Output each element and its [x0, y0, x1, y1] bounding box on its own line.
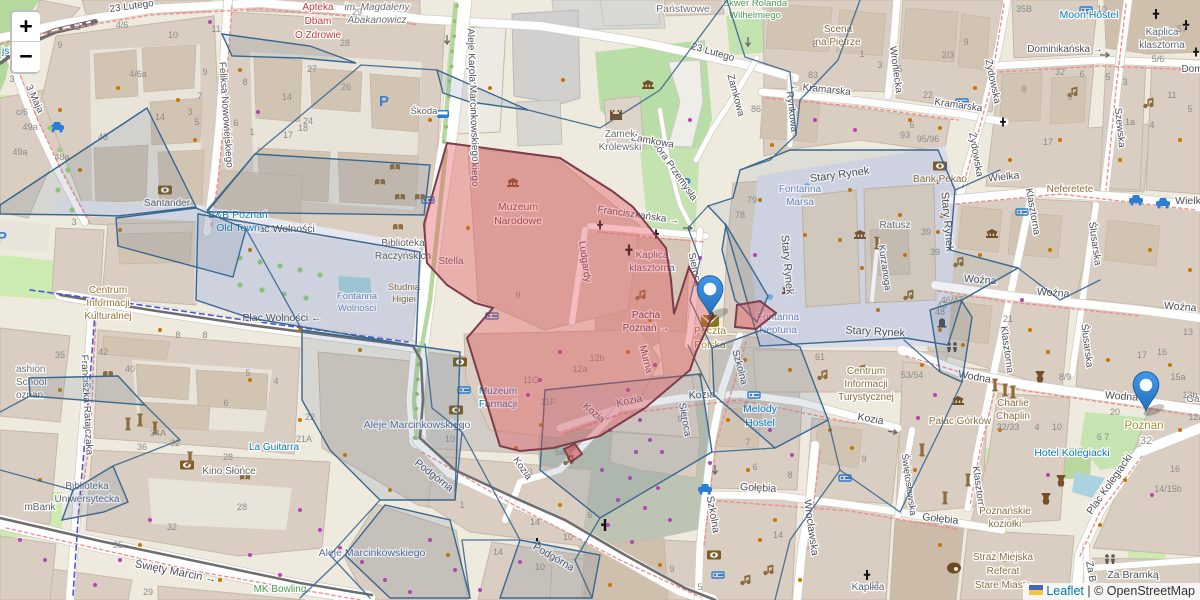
- svg-text:9: 9: [861, 454, 866, 464]
- svg-text:Kino Słońce: Kino Słońce: [202, 466, 256, 477]
- svg-text:40: 40: [125, 364, 135, 374]
- svg-text:8: 8: [202, 330, 207, 340]
- svg-text:5: 5: [194, 117, 199, 127]
- svg-text:Referat: Referat: [987, 566, 1020, 577]
- svg-text:Kaplica: Kaplica: [1146, 27, 1179, 38]
- svg-text:5: 5: [1187, 104, 1192, 114]
- svg-text:10: 10: [1052, 422, 1062, 432]
- svg-text:35B: 35B: [1016, 4, 1032, 14]
- svg-text:20: 20: [1110, 407, 1120, 417]
- svg-text:21A: 21A: [296, 434, 312, 444]
- svg-text:7: 7: [197, 91, 202, 101]
- svg-text:ashion: ashion: [16, 364, 45, 375]
- svg-text:4: 4: [273, 376, 278, 386]
- svg-text:42: 42: [98, 347, 108, 357]
- svg-text:12a: 12a: [1188, 412, 1200, 422]
- svg-text:Pałac Górków: Pałac Górków: [929, 416, 992, 427]
- svg-text:2/3: 2/3: [942, 50, 955, 60]
- svg-text:3: 3: [527, 467, 532, 477]
- svg-text:3: 3: [1122, 77, 1127, 87]
- svg-text:34A: 34A: [150, 428, 166, 438]
- svg-text:35: 35: [55, 350, 65, 360]
- svg-text:5: 5: [245, 368, 250, 378]
- svg-text:9: 9: [669, 564, 674, 574]
- svg-text:3: 3: [9, 74, 14, 84]
- svg-text:9: 9: [202, 67, 207, 77]
- svg-text:Straż Miejska: Straż Miejska: [973, 552, 1033, 563]
- svg-text:Śkoda: Śkoda: [411, 105, 439, 117]
- svg-text:Informacji: Informacji: [86, 298, 129, 309]
- svg-text:83: 83: [808, 70, 818, 80]
- svg-text:Zamek: Zamek: [605, 129, 637, 140]
- svg-text:6: 6: [233, 118, 238, 128]
- svg-text:29: 29: [352, 7, 362, 17]
- svg-text:16: 16: [1170, 464, 1180, 474]
- svg-text:14: 14: [155, 112, 165, 122]
- svg-text:3: 3: [877, 60, 882, 70]
- svg-text:Za Bramką: Za Bramką: [1107, 569, 1159, 581]
- svg-text:11: 11: [1167, 90, 1176, 100]
- svg-text:1: 1: [859, 49, 864, 59]
- svg-text:14/15b: 14/15b: [1154, 484, 1182, 494]
- svg-text:2: 2: [75, 22, 80, 32]
- svg-text:P: P: [0, 229, 7, 246]
- svg-text:7: 7: [745, 437, 750, 447]
- svg-text:26: 26: [341, 82, 351, 92]
- svg-text:koziołki: koziołki: [989, 519, 1022, 530]
- svg-text:6: 6: [752, 462, 757, 472]
- svg-text:1a: 1a: [1125, 117, 1135, 127]
- svg-text:1: 1: [249, 127, 254, 137]
- svg-text:MK Bowling: MK Bowling: [254, 584, 307, 595]
- svg-text:3: 3: [71, 217, 76, 227]
- svg-text:4/6a: 4/6a: [129, 69, 147, 79]
- svg-text:32/33: 32/33: [997, 422, 1020, 432]
- svg-text:6: 6: [909, 120, 914, 130]
- svg-text:Apteka: Apteka: [302, 2, 334, 13]
- svg-text:Wilhelmiego: Wilhelmiego: [729, 10, 781, 21]
- svg-text:6 7: 6 7: [1097, 432, 1110, 442]
- svg-text:Chaplin: Chaplin: [996, 411, 1030, 422]
- svg-text:8: 8: [175, 330, 180, 340]
- svg-text:18: 18: [298, 123, 308, 133]
- svg-text:13: 13: [1183, 327, 1193, 337]
- svg-text:Poznan: Poznan: [1124, 420, 1163, 432]
- svg-text:61: 61: [815, 352, 825, 362]
- svg-text:9: 9: [57, 40, 62, 50]
- svg-text:Dom: Dom: [1181, 64, 1200, 75]
- svg-text:na Piętrze: na Piętrze: [815, 37, 860, 48]
- svg-text:14: 14: [530, 517, 540, 527]
- svg-text:c/6: c/6: [16, 107, 28, 117]
- svg-text:8: 8: [1021, 84, 1026, 94]
- svg-text:17: 17: [1137, 350, 1147, 360]
- svg-text:Dominikańska →: Dominikańska →: [1027, 44, 1103, 55]
- svg-text:4: 4: [1034, 422, 1039, 432]
- svg-text:8: 8: [787, 470, 792, 480]
- svg-text:11: 11: [870, 580, 879, 590]
- svg-text:9: 9: [1067, 92, 1072, 102]
- svg-text:Neferetete: Neferetete: [1047, 184, 1094, 195]
- svg-text:17: 17: [1043, 137, 1053, 147]
- svg-text:mBank: mBank: [24, 502, 56, 513]
- svg-text:4: 4: [1149, 120, 1154, 130]
- svg-text:9: 9: [963, 37, 968, 47]
- svg-text:O Zdrowie: O Zdrowie: [295, 30, 342, 41]
- svg-text:P: P: [379, 93, 389, 110]
- svg-text:22: 22: [923, 90, 933, 100]
- svg-text:Gołębia: Gołębia: [740, 481, 777, 495]
- svg-text:15a: 15a: [1170, 372, 1185, 382]
- svg-text:6: 6: [223, 398, 228, 408]
- svg-text:29: 29: [143, 587, 153, 597]
- svg-text:8: 8: [242, 77, 247, 87]
- svg-text:32: 32: [1140, 435, 1152, 447]
- svg-text:16: 16: [1157, 347, 1167, 357]
- svg-text:Kaplica: Kaplica: [852, 582, 885, 593]
- svg-text:Dbam: Dbam: [305, 16, 332, 27]
- svg-text:53/54: 53/54: [901, 370, 924, 380]
- svg-text:Skwer Rolanda: Skwer Rolanda: [723, 0, 788, 9]
- svg-text:21: 21: [1003, 314, 1013, 324]
- svg-text:8: 8: [812, 39, 817, 49]
- svg-text:Informacji: Informacji: [844, 379, 887, 390]
- svg-text:49a: 49a: [22, 122, 37, 132]
- svg-text:36: 36: [137, 442, 147, 452]
- svg-text:Wielk: Wielk: [1175, 195, 1200, 207]
- svg-text:10: 10: [168, 30, 178, 40]
- svg-text:Charlie: Charlie: [997, 398, 1029, 409]
- svg-text:14: 14: [493, 547, 503, 557]
- svg-text:5: 5: [697, 582, 702, 592]
- svg-text:27: 27: [307, 64, 317, 74]
- svg-text:4/6: 4/6: [116, 20, 129, 30]
- svg-text:32: 32: [167, 522, 177, 532]
- svg-text:1: 1: [459, 500, 464, 510]
- svg-text:35: 35: [113, 540, 123, 550]
- svg-text:Państwowe: Państwowe: [656, 3, 710, 15]
- svg-text:11: 11: [211, 24, 220, 34]
- svg-text:Centrum: Centrum: [847, 366, 885, 377]
- svg-text:Poznańskie: Poznańskie: [979, 506, 1031, 517]
- svg-text:Moon Hostel: Moon Hostel: [1060, 9, 1119, 21]
- svg-text:Turystycznej: Turystycznej: [838, 392, 894, 403]
- svg-text:5: 5: [1105, 72, 1110, 82]
- svg-text:8/9: 8/9: [1059, 372, 1072, 382]
- svg-text:57: 57: [1177, 24, 1187, 34]
- svg-text:10: 10: [1097, 4, 1107, 14]
- svg-text:14: 14: [773, 530, 783, 540]
- svg-text:28: 28: [340, 38, 350, 48]
- svg-text:32: 32: [1055, 67, 1065, 77]
- svg-text:Kulturalnej: Kulturalnej: [84, 311, 131, 322]
- svg-text:La Guitarra: La Guitarra: [249, 442, 299, 453]
- svg-text:klasztorna: klasztorna: [1139, 40, 1185, 51]
- svg-text:Królewski: Królewski: [599, 142, 642, 153]
- svg-text:3: 3: [187, 107, 192, 117]
- svg-text:93: 93: [900, 130, 910, 140]
- svg-text:10: 10: [563, 532, 573, 542]
- svg-text:5/6: 5/6: [1152, 54, 1165, 64]
- svg-text:17: 17: [283, 130, 293, 140]
- svg-text:95/96: 95/96: [917, 134, 940, 144]
- svg-text:14: 14: [282, 92, 292, 102]
- svg-text:13b: 13b: [1182, 390, 1197, 400]
- svg-text:Centrum: Centrum: [89, 285, 127, 296]
- svg-text:28: 28: [223, 452, 233, 462]
- svg-text:5: 5: [897, 64, 902, 74]
- svg-text:86: 86: [751, 104, 761, 114]
- svg-text:Hotel Kolegiacki: Hotel Kolegiacki: [1034, 447, 1109, 459]
- svg-text:49a: 49a: [12, 147, 27, 157]
- svg-text:6: 6: [1079, 69, 1084, 79]
- svg-text:28: 28: [237, 502, 247, 512]
